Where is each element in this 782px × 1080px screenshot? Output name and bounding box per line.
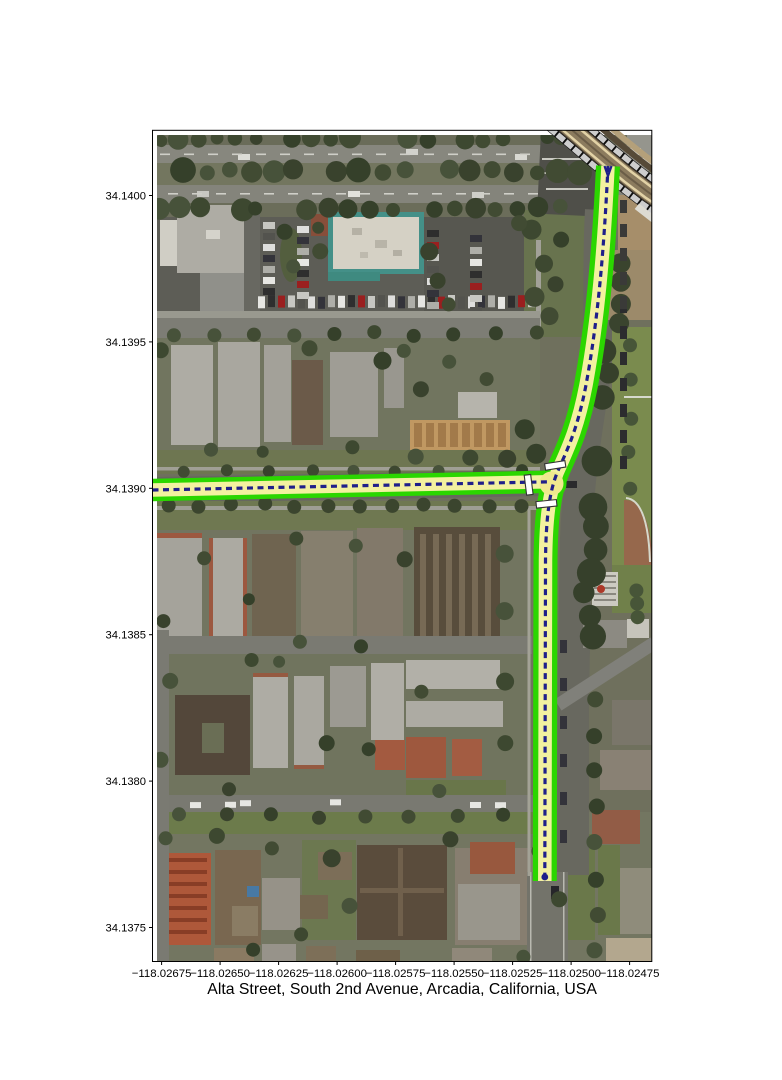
svg-text:34.1380: 34.1380 [106,776,146,788]
svg-text:34.1390: 34.1390 [106,483,146,495]
svg-text:34.1400: 34.1400 [106,191,146,203]
svg-text:34.1375: 34.1375 [106,923,146,935]
svg-text:−118.02650: −118.02650 [190,968,250,980]
svg-text:−118.02550: −118.02550 [424,968,484,980]
svg-text:−118.02600: −118.02600 [307,968,367,980]
svg-text:Alta Street, South 2nd Avenue,: Alta Street, South 2nd Avenue, Arcadia, … [207,981,597,998]
svg-text:−118.02625: −118.02625 [249,968,309,980]
svg-text:34.1385: 34.1385 [106,630,146,642]
svg-text:−118.02575: −118.02575 [366,968,426,980]
svg-text:−118.02475: −118.02475 [600,968,660,980]
svg-text:−118.02525: −118.02525 [483,968,543,980]
svg-text:34.1395: 34.1395 [106,337,146,349]
svg-text:−118.02675: −118.02675 [132,968,192,980]
svg-text:−118.02500: −118.02500 [541,968,601,980]
